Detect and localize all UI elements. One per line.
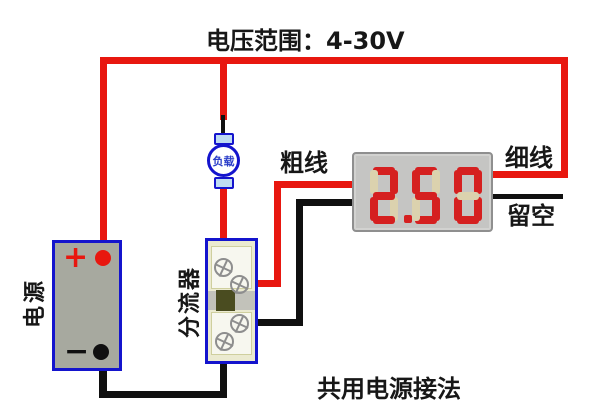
- load-body: 负载: [207, 144, 240, 177]
- segment-f: [454, 170, 462, 194]
- shunt-screw-lower-right: [230, 314, 249, 333]
- shunt-screw-bottom: [215, 332, 234, 351]
- bottom-caption: 共用电源接法: [317, 377, 461, 401]
- thin-wire-label: 细线: [505, 146, 553, 170]
- wire-red-mid-vertical: [274, 181, 281, 287]
- segment-e: [412, 197, 420, 221]
- wire-black-bottom-horizontal: [99, 391, 227, 398]
- battery-positive-terminal: [95, 250, 111, 266]
- segment-b: [390, 170, 398, 194]
- wire-red-top-horizontal: [100, 57, 568, 64]
- thick-wire-label: 粗线: [280, 151, 328, 175]
- minus-symbol: −: [64, 337, 89, 367]
- wire-red-right-vertical-thin: [561, 57, 568, 178]
- shunt-screw-upper-right: [230, 275, 249, 294]
- plus-symbol: +: [63, 243, 88, 273]
- wiring-diagram: 电压范围：4-30V + − 电源 负载 分流器 粗线 细线 留空 共用电源接法: [0, 0, 600, 409]
- shunt-screw-top: [214, 258, 233, 277]
- segment-f: [412, 170, 420, 194]
- wire-black-mid-vertical: [296, 199, 303, 326]
- power-supply-label: 电源: [25, 278, 47, 328]
- shunt-resistor-element: [216, 290, 235, 311]
- segment-b: [474, 170, 482, 194]
- seven-segment-digit: [454, 167, 482, 224]
- voltmeter-display: [354, 154, 491, 230]
- seven-segment-digit: [412, 167, 440, 224]
- shunt-label: 分流器: [180, 266, 202, 338]
- segment-g: [373, 192, 395, 200]
- seven-segment-digit: [370, 167, 398, 224]
- segment-g: [457, 192, 479, 200]
- wire-red-battery-positive: [100, 57, 107, 258]
- load-terminal-bottom: [214, 177, 234, 189]
- battery-negative-terminal: [93, 344, 109, 360]
- segment-g: [415, 192, 437, 200]
- load-label: 负载: [213, 153, 235, 169]
- decimal-point: [404, 215, 412, 223]
- diagram-title: 电压范围：4-30V: [206, 29, 405, 53]
- leave-empty-label: 留空: [507, 204, 555, 228]
- wire-black-leave-empty-stub: [492, 194, 563, 199]
- segment-f: [370, 170, 378, 194]
- segment-e: [370, 197, 378, 221]
- segment-b: [432, 170, 440, 194]
- wire-black-to-meter-left: [296, 199, 353, 206]
- wire-red-to-meter-left: [274, 181, 353, 188]
- wire-red-to-load-top: [220, 57, 227, 120]
- voltmeter-bezel: [352, 152, 493, 232]
- wire-red-to-meter-right: [492, 171, 568, 178]
- segment-e: [454, 197, 462, 221]
